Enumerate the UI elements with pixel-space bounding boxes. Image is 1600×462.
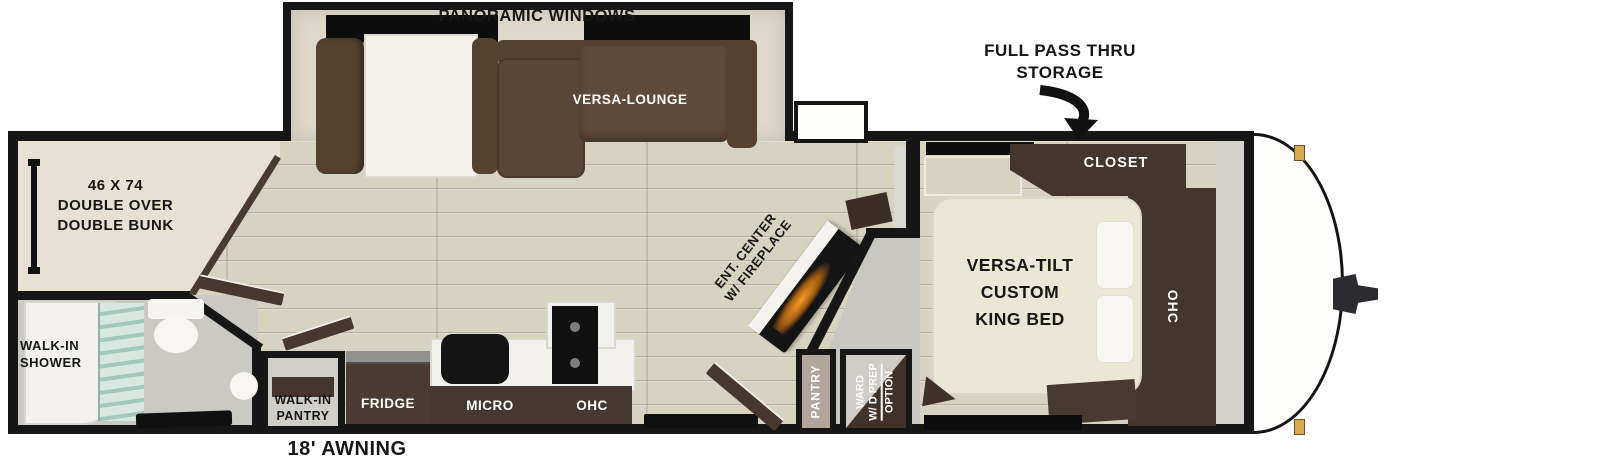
ward-line1: WARD: [855, 363, 868, 420]
bedroom-bottom-window: [924, 415, 1082, 430]
versa-lounge-label: VERSA-LOUNGE: [560, 92, 700, 109]
king-bed-label: VERSA-TILT CUSTOM KING BED: [930, 252, 1110, 333]
walk-in-shower-line2: SHOWER: [20, 355, 82, 370]
pass-thru-storage-area: [1216, 141, 1244, 424]
stove: [552, 306, 598, 384]
bunk-label-line1: 46 X 74: [88, 177, 143, 194]
bunk-bracket-cap-bottom: [28, 267, 40, 274]
king-bed-line1: VERSA-TILT: [967, 255, 1074, 275]
stove-burner-1: [570, 322, 580, 332]
versa-lounge-arm: [727, 48, 757, 148]
ward-label: WARD W/ D PREP OPTION: [855, 363, 897, 420]
bunk-bracket-cap-top: [28, 159, 40, 166]
versa-lounge-chaise: [497, 58, 585, 178]
panoramic-windows-label: PANORAMIC WINDOWS: [437, 6, 637, 27]
walk-in-shower-label: WALK-IN SHOWER: [20, 337, 116, 371]
closet-label: CLOSET: [1056, 154, 1176, 172]
kitchen-ohc-label: OHC: [557, 398, 627, 415]
fridge-label: FRIDGE: [346, 396, 430, 413]
awning-label: 18' AWNING: [252, 437, 442, 462]
entry-door-mat: [644, 414, 758, 428]
full-pass-thru-label: FULL PASS THRU STORAGE: [955, 40, 1165, 84]
bedroom-dresser: [924, 156, 1022, 196]
slideout-bed-mattress: [364, 34, 478, 178]
ward-line3: OPTION: [881, 363, 897, 420]
slideout-bed-bolster-left: [316, 38, 364, 174]
king-bed-line3: KING BED: [975, 309, 1065, 329]
ward-line2: W/ D PREP: [868, 363, 881, 420]
hitch: [1333, 274, 1378, 314]
micro-label: MICRO: [450, 398, 530, 415]
slideout-bed-bolster-right: [472, 38, 498, 174]
stove-burner-2: [570, 358, 580, 368]
pantry-cabinet: PANTRY: [796, 349, 836, 434]
bunk-label-line3: DOUBLE BUNK: [57, 217, 173, 234]
kitchen-sink: [441, 334, 509, 384]
clearance-light-bottom: [1294, 419, 1305, 435]
bunk-label-line2: DOUBLE OVER: [58, 197, 174, 214]
bedroom-wall-cap: [894, 146, 906, 234]
fridge-top-band: [346, 351, 430, 364]
full-pass-thru-line1: FULL PASS THRU: [984, 41, 1136, 60]
floorplan-diagram: VERSA-LOUNGE 46 X 74 DOUBLE OVER DOUBLE …: [0, 0, 1600, 462]
toilet-bowl: [154, 317, 198, 353]
bunk-label: 46 X 74 DOUBLE OVER DOUBLE BUNK: [28, 176, 203, 236]
ward-cabinet: WARD W/ D PREP OPTION: [840, 349, 912, 434]
down-arrow-icon: [1032, 84, 1112, 140]
king-bed-line2: CUSTOM: [981, 282, 1060, 302]
toilet-tank: [148, 299, 204, 319]
bedroom-ohc-label: OHC: [1163, 290, 1181, 324]
pantry-label: PANTRY: [809, 365, 824, 419]
bathroom-sink: [230, 372, 258, 400]
walk-in-pantry-label: WALK-IN PANTRY: [262, 392, 344, 424]
bedroom-wall-vertical: [906, 141, 920, 238]
walk-in-pantry-line2: PANTRY: [277, 409, 330, 423]
walk-in-shower-line1: WALK-IN: [20, 338, 79, 353]
kitchen-top-window: [794, 101, 868, 143]
walk-in-pantry-line1: WALK-IN: [275, 393, 332, 407]
front-cap: [1254, 133, 1344, 434]
full-pass-thru-line2: STORAGE: [1016, 63, 1103, 82]
clearance-light-top: [1294, 145, 1305, 161]
